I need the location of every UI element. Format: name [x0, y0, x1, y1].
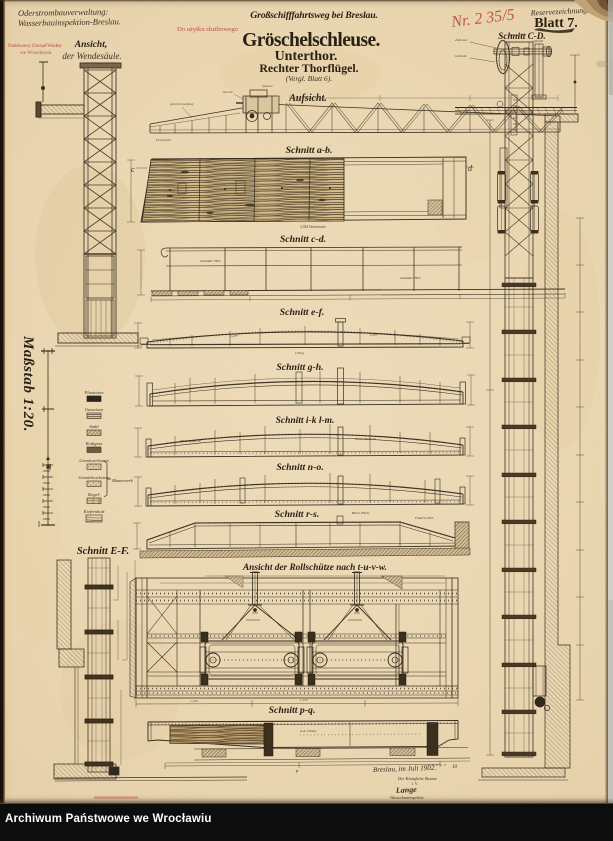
svg-text:Schnitt g-h.: Schnitt g-h.	[276, 362, 323, 373]
svg-text:1,277: 1,277	[230, 334, 238, 339]
svg-text:Ansicht der Rollschütze nach t: Ansicht der Rollschütze nach t-u-v-w.	[242, 563, 387, 573]
svg-text:Granitbruchstein: Granitbruchstein	[79, 475, 111, 480]
svg-text:Flusseisen: Flusseisen	[84, 390, 105, 395]
svg-text:c: c	[131, 165, 135, 174]
svg-text:Nr. 2 35/5: Nr. 2 35/5	[449, 6, 515, 31]
svg-text:Spindel: Spindel	[533, 39, 543, 43]
svg-text:Der Königliche Baurat: Der Königliche Baurat	[397, 776, 437, 781]
svg-text:p: p	[295, 768, 299, 773]
svg-text:Winkel 80.80.10: Winkel 80.80.10	[180, 439, 201, 443]
svg-text:(Vergl. Blatt 6).: (Vergl. Blatt 6).	[286, 74, 333, 83]
svg-text:Handkurbel: Handkurbel	[509, 33, 526, 37]
svg-text:Schnitt E-F.: Schnitt E-F.	[77, 546, 129, 557]
svg-text:1,130: 1,130	[300, 698, 308, 703]
svg-text:1,277: 1,277	[370, 333, 378, 338]
svg-text:der Wendesäule.: der Wendesäule.	[62, 51, 121, 61]
svg-text:Schnitt n-o.: Schnitt n-o.	[276, 462, 323, 473]
svg-text:1,90 lg.: 1,90 lg.	[295, 351, 305, 356]
svg-text:Mauerwerk: Mauerwerk	[111, 478, 134, 483]
svg-text:Geländer 38/5: Geländer 38/5	[400, 276, 421, 280]
svg-text:Kiefernholz: Kiefernholz	[83, 509, 105, 514]
svg-text:in d. Chaise: in d. Chaise	[300, 729, 317, 733]
svg-text:Schnitt e-f.: Schnitt e-f.	[280, 307, 325, 318]
svg-text:Geländer 38/5: Geländer 38/5	[200, 259, 221, 263]
svg-text:Aufsicht.: Aufsicht.	[288, 93, 327, 104]
svg-text:Spindel: Spindel	[262, 84, 273, 88]
svg-text:Wasserbauinspektor.: Wasserbauinspektor.	[390, 795, 424, 800]
svg-text:Winkel 80.80.10: Winkel 80.80.10	[355, 437, 376, 441]
svg-text:Maßstab 1:20.: Maßstab 1:20.	[20, 335, 36, 432]
svg-text:Państwowy Zarząd Wodny: Państwowy Zarząd Wodny	[8, 43, 62, 49]
svg-text:Gusseisen: Gusseisen	[85, 407, 104, 412]
svg-text:10: 10	[452, 765, 458, 770]
svg-text:Ziegel-: Ziegel-	[88, 492, 101, 497]
svg-text:1,130: 1,130	[190, 699, 198, 704]
svg-text:Rechter Thorflügel.: Rechter Thorflügel.	[259, 61, 358, 75]
svg-text:Drehpunkt: Drehpunkt	[155, 138, 172, 142]
svg-text:Antrieb: Antrieb	[222, 90, 234, 94]
svg-text:Schnitt a-b.: Schnitt a-b.	[286, 145, 333, 156]
svg-text:Granitwerkstein: Granitwerkstein	[79, 458, 109, 463]
svg-text:Antrieb Laufsteg: Antrieb Laufsteg	[169, 102, 194, 106]
svg-text:Getriebe: Getriebe	[455, 54, 467, 58]
svg-text:Schnitt c-d.: Schnitt c-d.	[280, 234, 326, 245]
svg-text:Gröschelschleuse.: Gröschelschleuse.	[242, 30, 380, 51]
svg-text:Schnitt r-s.: Schnitt r-s.	[275, 509, 320, 520]
svg-text:Lange: Lange	[395, 785, 418, 795]
svg-text:2,554 Stemmweite: 2,554 Stemmweite	[300, 225, 327, 230]
svg-text:Wasserbauinspektion-Breslau.: Wasserbauinspektion-Breslau.	[18, 16, 121, 28]
svg-text:Schnitt p-q.: Schnitt p-q.	[269, 705, 316, 716]
svg-text:Blech 296/11: Blech 296/11	[352, 511, 370, 515]
svg-text:Zahnrad: Zahnrad	[455, 38, 467, 42]
svg-text:Großschifffahrtsweg bei Bresla: Großschifffahrtsweg bei Breslau.	[250, 10, 377, 21]
svg-text:Breslau, im Juli 1902.: Breslau, im Juli 1902.	[373, 764, 437, 774]
svg-text:Do użytku służbowego: Do użytku służbowego	[177, 26, 239, 33]
svg-text:we Wrocławiu: we Wrocławiu	[20, 50, 52, 56]
svg-text:Rothguss: Rothguss	[85, 441, 103, 446]
svg-text:Stahl: Stahl	[89, 424, 99, 429]
svg-text:Futterst. 60/5: Futterst. 60/5	[414, 516, 434, 520]
svg-text:Schnitt i-k l-m.: Schnitt i-k l-m.	[276, 416, 335, 426]
svg-text:Ansicht,: Ansicht,	[74, 40, 107, 50]
